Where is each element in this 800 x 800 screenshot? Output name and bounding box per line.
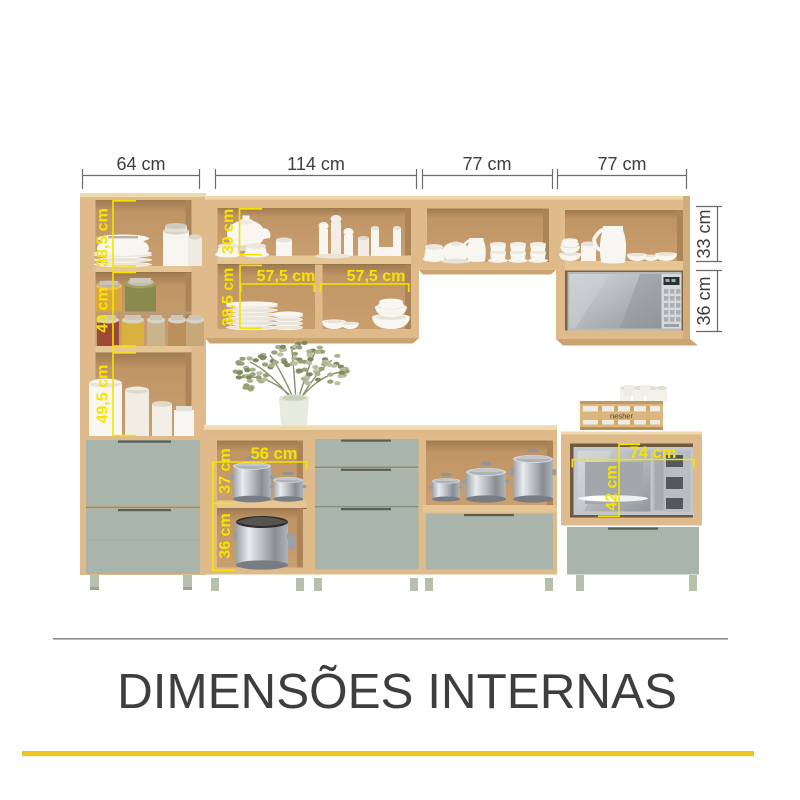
svg-text:57,5 cm: 57,5 cm — [347, 268, 406, 285]
svg-text:49,5 cm: 49,5 cm — [95, 365, 112, 424]
svg-text:57,5 cm: 57,5 cm — [257, 268, 316, 285]
svg-text:38,5 cm: 38,5 cm — [95, 208, 112, 267]
svg-text:77 cm: 77 cm — [597, 154, 646, 174]
svg-text:36 cm: 36 cm — [694, 276, 714, 325]
svg-text:74 cm: 74 cm — [630, 444, 677, 462]
svg-text:56 cm: 56 cm — [251, 445, 298, 463]
svg-text:37 cm: 37 cm — [217, 448, 234, 493]
svg-text:64 cm: 64 cm — [116, 154, 165, 174]
svg-text:42 cm: 42 cm — [604, 465, 621, 510]
svg-text:36 cm: 36 cm — [217, 513, 234, 558]
svg-text:nesher: nesher — [610, 412, 633, 421]
svg-text:33 cm: 33 cm — [694, 209, 714, 258]
svg-text:77 cm: 77 cm — [462, 154, 511, 174]
svg-text:38,5 cm: 38,5 cm — [220, 268, 237, 327]
svg-text:DIMENSÕES INTERNAS: DIMENSÕES INTERNAS — [117, 663, 677, 719]
svg-text:114 cm: 114 cm — [287, 154, 345, 174]
svg-text:43 cm: 43 cm — [95, 287, 112, 332]
svg-text:30 cm: 30 cm — [220, 209, 237, 254]
